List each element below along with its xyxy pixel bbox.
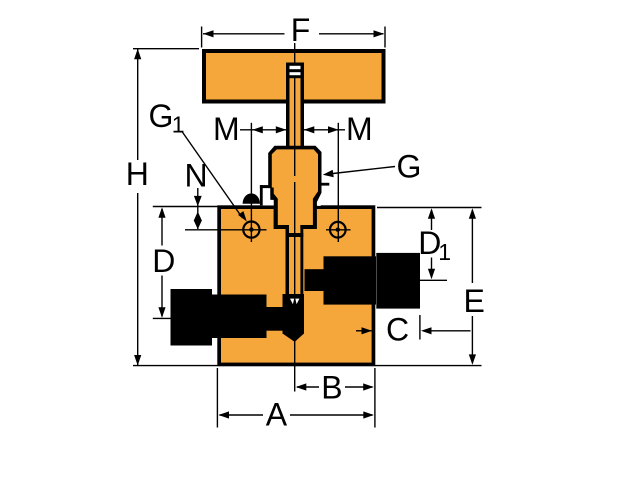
svg-text:F: F xyxy=(291,12,311,48)
svg-text:A: A xyxy=(266,397,288,433)
svg-text:B: B xyxy=(321,370,342,406)
svg-text:H: H xyxy=(126,156,149,192)
svg-text:1: 1 xyxy=(438,239,451,265)
svg-text:M: M xyxy=(213,111,240,147)
svg-text:C: C xyxy=(386,312,409,348)
svg-text:G: G xyxy=(149,98,174,134)
svg-text:M: M xyxy=(346,111,373,147)
svg-text:E: E xyxy=(464,283,485,319)
svg-text:1: 1 xyxy=(172,112,185,138)
svg-text:D: D xyxy=(152,243,175,279)
svg-text:N: N xyxy=(185,158,208,194)
svg-text:G: G xyxy=(397,149,422,185)
